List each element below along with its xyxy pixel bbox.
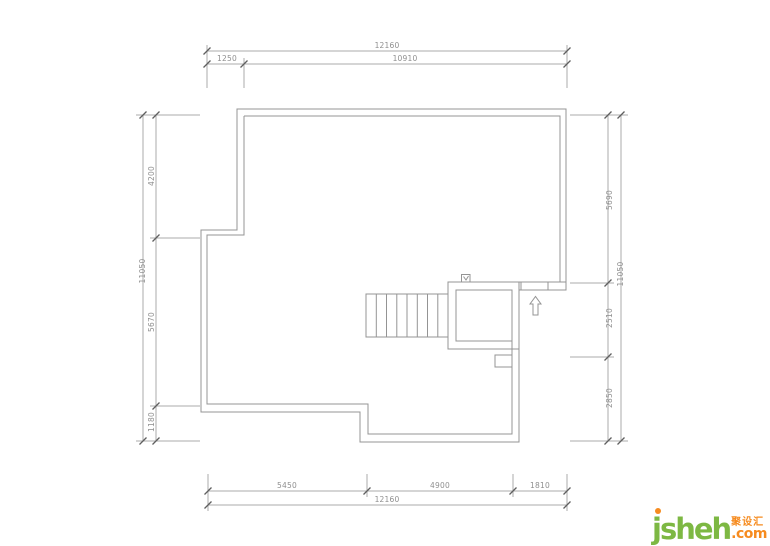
entry-direction [530,297,541,316]
shaft-inner-wall [456,290,512,341]
dimension-lines [136,45,628,511]
dim-left-seg3: 1180 [147,412,156,432]
logo-right-column: 聚设汇 .com [731,518,767,541]
entry-threshold [519,282,566,290]
shaft-outer-wall [448,282,519,349]
wall-outline-inner [207,116,560,434]
dim-bottom-seg2: 4900 [430,481,450,490]
dim-top-seg1: 1250 [217,54,237,63]
dim-left-seg2: 5670 [147,312,156,332]
dim-bottom-overall: 12160 [375,495,400,504]
dimension-tick-marks [140,48,625,509]
dim-right-overall: 11050 [616,262,625,287]
dim-left-overall: 11050 [138,259,147,284]
dim-top-seg2: 10910 [393,54,418,63]
dim-right-seg2: 2510 [605,308,614,328]
dimension-labels: 12160 1250 10910 11050 4200 5670 1180 56… [138,41,625,504]
logo-brand-text: jsheh [652,518,730,541]
plan-walls [201,109,566,442]
column-marker-icon [462,275,471,283]
stair-treads [366,294,448,337]
dim-bottom-seg1: 5450 [277,481,297,490]
wall-niche-box [495,355,512,367]
dim-left-seg1: 4200 [147,166,156,186]
dim-bottom-seg3: 1810 [530,481,550,490]
logo-domain-suffix: .com [731,528,767,541]
floor-plan-drawing: 12160 1250 10910 11050 4200 5670 1180 56… [0,0,770,544]
wall-outline-outer [201,109,566,442]
dim-top-overall: 12160 [375,41,400,50]
stair-core [366,275,519,368]
logo-j-dot-icon [655,508,661,514]
jsheh-logo: jsheh 聚设汇 .com [652,505,767,541]
up-arrow-icon [530,297,541,316]
dim-right-seg1: 5690 [605,190,614,210]
dim-right-seg3: 2850 [605,388,614,408]
